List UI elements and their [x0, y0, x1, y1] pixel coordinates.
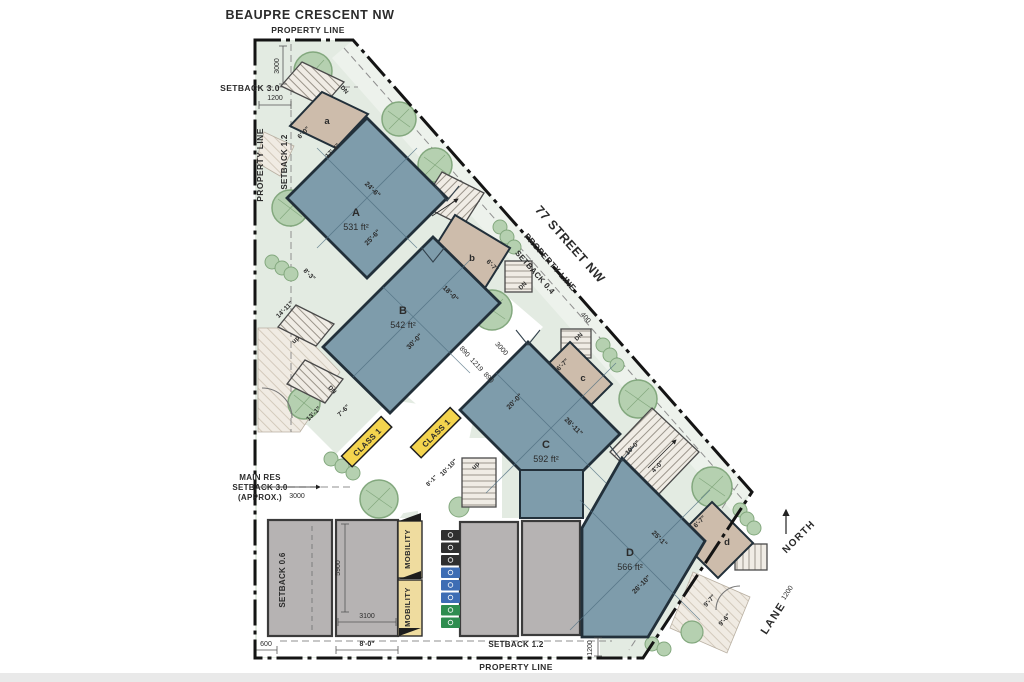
- entrance-d-label: d: [724, 537, 730, 548]
- dim-8-0: 8'-0": [359, 641, 374, 648]
- setback-30-label: SETBACK 3.0: [220, 83, 280, 93]
- site-plan-canvas: CLASS 1 CLASS 1 BEAUPRE CRESCENT NW PROP…: [0, 0, 1024, 682]
- dim-1200-lane: 1200: [781, 585, 795, 602]
- entrance-a-label: a: [324, 116, 330, 127]
- unit-C-label: C: [542, 439, 550, 451]
- entrance-c-label: c: [580, 373, 585, 384]
- unit-D-label: D: [626, 547, 634, 559]
- tree-icon: [681, 621, 703, 643]
- unit-A-label: A: [352, 207, 360, 219]
- dim-3000-main-res: 3000: [289, 493, 305, 500]
- recycling-bin-icon: [441, 568, 460, 604]
- dim-3100: 3100: [359, 613, 375, 620]
- property-line-label-top: PROPERTY LINE: [271, 25, 345, 35]
- main-res-label-2: SETBACK 3.0: [232, 483, 288, 492]
- setback-06-label: SETBACK 0.6: [278, 552, 287, 608]
- mobility-label-1: MOBILITY: [403, 529, 412, 569]
- unit-C-area: 592 ft²: [533, 454, 559, 464]
- unit-B-area: 542 ft²: [390, 320, 416, 330]
- unit-link-corridor: [520, 470, 583, 518]
- dim-600: 600: [260, 641, 272, 648]
- entrance-b-label: b: [469, 253, 475, 264]
- setback-12-left-label: SETBACK 1.2: [280, 134, 289, 190]
- parking-stall-4: [522, 521, 580, 635]
- unit-D-area: 566 ft²: [617, 562, 643, 572]
- unit-A-area: 531 ft²: [343, 222, 369, 232]
- property-line-label-left: PROPERTY LINE: [255, 128, 265, 202]
- tree-icon: [382, 102, 416, 136]
- property-line-label-bottom: PROPERTY LINE: [479, 662, 553, 672]
- dim-1200-top: 1200: [267, 95, 283, 102]
- dim-5900: 5900: [335, 560, 342, 576]
- mobility-label-2: MOBILITY: [403, 587, 412, 627]
- dim-3000-top: 3000: [274, 58, 281, 74]
- setback-12-bottom-label: SETBACK 1.2: [488, 640, 544, 649]
- bottom-edge-strip: [0, 673, 1024, 682]
- site-plan-drawing: CLASS 1 CLASS 1 BEAUPRE CRESCENT NW PROP…: [0, 0, 1024, 682]
- parking-stall-3: [460, 522, 518, 636]
- main-res-label-3: (APPROX.): [238, 493, 282, 502]
- tree-icon: [360, 480, 398, 518]
- garbage-bin-icon: [441, 530, 460, 566]
- dim-1200-bottom: 1200: [587, 640, 594, 656]
- main-res-label-1: MAIN RES: [239, 473, 281, 482]
- street-label-beaupre: BEAUPRE CRESCENT NW: [225, 8, 394, 22]
- unit-B-label: B: [399, 305, 407, 317]
- lane-label: LANE: [759, 600, 789, 637]
